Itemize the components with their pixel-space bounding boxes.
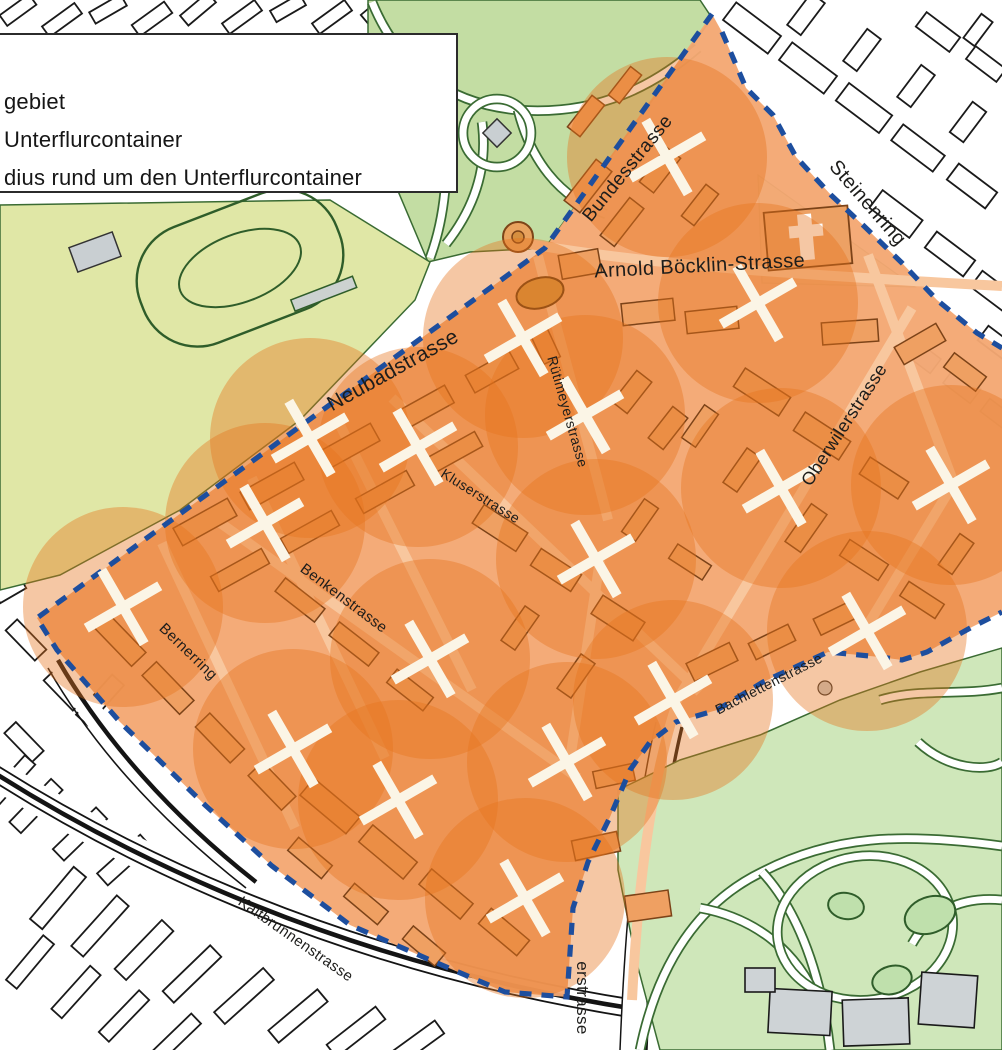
zoo-building — [842, 998, 910, 1046]
legend-item-radius: dius rund um den Unterflurcontainer — [4, 159, 456, 197]
zoo-building — [745, 968, 775, 992]
legend-item-container: Unterflurcontainer — [4, 121, 456, 159]
legend-item-pilot-area: gebiet — [4, 83, 456, 121]
legend-box: gebiet Unterflurcontainer dius rund um d… — [0, 33, 458, 193]
pilot-building — [624, 890, 671, 922]
street-label: erstrasse — [573, 961, 592, 1035]
map-screenshot: BundesstrasseSteinenringArnold Böcklin-S… — [0, 0, 1002, 1050]
zoo-building — [918, 972, 977, 1028]
zoo-building — [768, 988, 832, 1035]
